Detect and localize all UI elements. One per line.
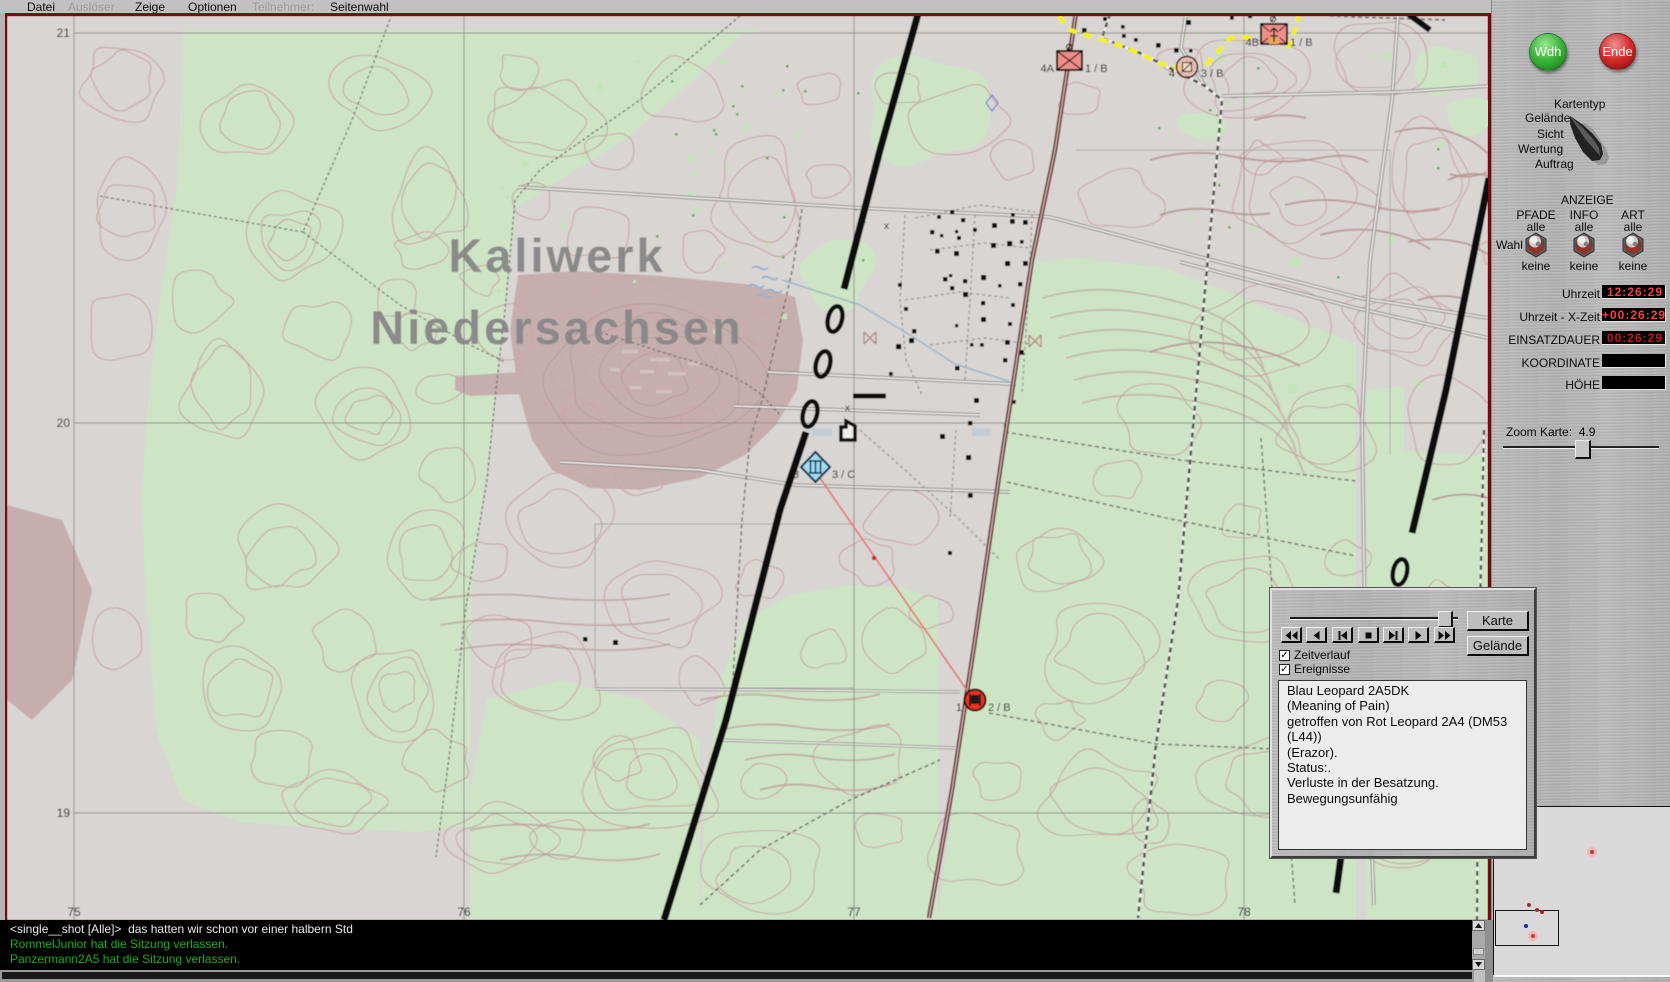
svg-text:76: 76 <box>457 905 471 919</box>
svg-text:4A: 4A <box>1041 63 1055 75</box>
svg-text:21: 21 <box>57 26 71 40</box>
svg-text:3: 3 <box>793 469 799 481</box>
svg-text:x: x <box>845 403 850 414</box>
svg-text:78: 78 <box>1237 905 1251 919</box>
svg-text:20: 20 <box>57 416 71 430</box>
svg-text:4B: 4B <box>1246 37 1259 49</box>
svg-text:2 / B: 2 / B <box>988 702 1011 714</box>
svg-text:x: x <box>884 221 889 232</box>
svg-text:4: 4 <box>1169 68 1175 80</box>
svg-text:1 / B: 1 / B <box>1085 63 1108 75</box>
svg-text:3 / B: 3 / B <box>1201 68 1224 80</box>
svg-text:3 / C: 3 / C <box>832 469 855 481</box>
svg-text:75: 75 <box>67 905 81 919</box>
svg-text:Kaliwerk: Kaliwerk <box>448 229 665 282</box>
svg-text:19: 19 <box>57 806 71 820</box>
svg-text:77: 77 <box>847 905 861 919</box>
svg-text:Niedersachsen: Niedersachsen <box>370 301 743 354</box>
svg-text:1 / B: 1 / B <box>1290 37 1313 49</box>
svg-text:1: 1 <box>956 702 962 714</box>
